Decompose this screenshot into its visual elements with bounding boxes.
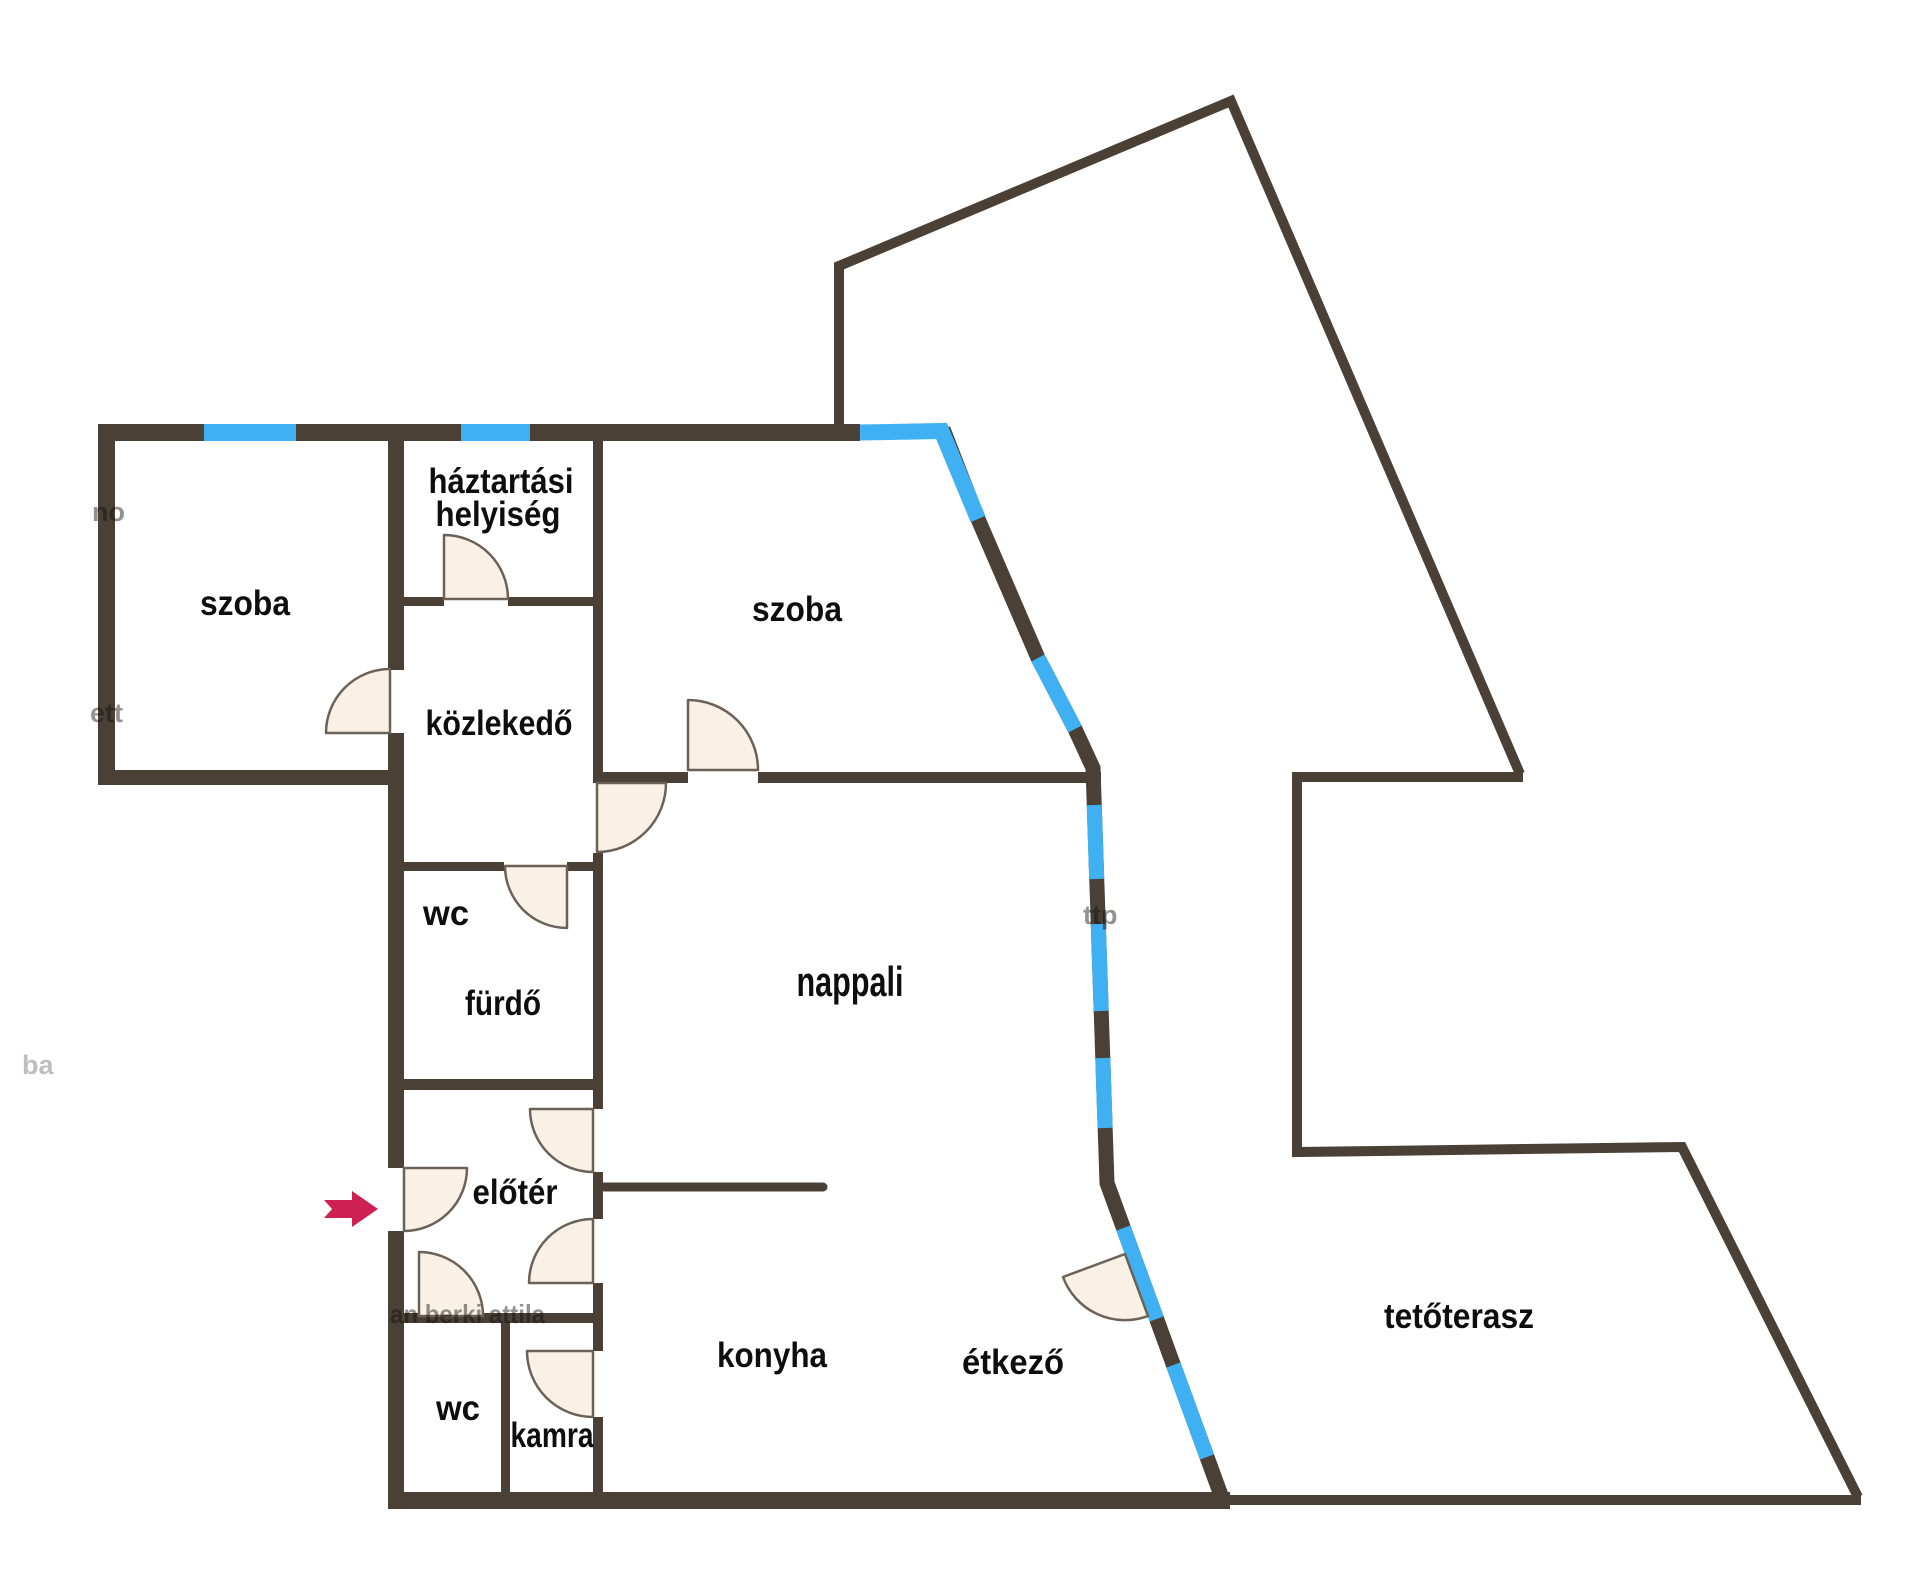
svg-text:ttp: ttp (1083, 900, 1117, 930)
svg-text:közlekedő: közlekedő (426, 704, 573, 743)
svg-text:wc: wc (435, 1389, 480, 1428)
svg-text:előtér: előtér (473, 1173, 558, 1212)
svg-text:konyha: konyha (717, 1336, 827, 1375)
svg-text:ba: ba (22, 1050, 54, 1080)
svg-text:étkező: étkező (962, 1343, 1064, 1382)
svg-text:no: no (92, 497, 125, 527)
svg-text:szoba: szoba (200, 584, 290, 623)
svg-text:fürdő: fürdő (465, 984, 541, 1023)
svg-text:tetőterasz: tetőterasz (1384, 1297, 1534, 1336)
svg-text:helyiség: helyiség (436, 495, 561, 534)
svg-text:wc: wc (422, 894, 469, 933)
svg-text:nappali: nappali (797, 958, 904, 1005)
svg-text:ett: ett (90, 698, 123, 728)
svg-text:an berki attila: an berki attila (390, 1299, 545, 1329)
svg-text:szoba: szoba (752, 590, 842, 629)
svg-text:kamra: kamra (511, 1416, 594, 1455)
